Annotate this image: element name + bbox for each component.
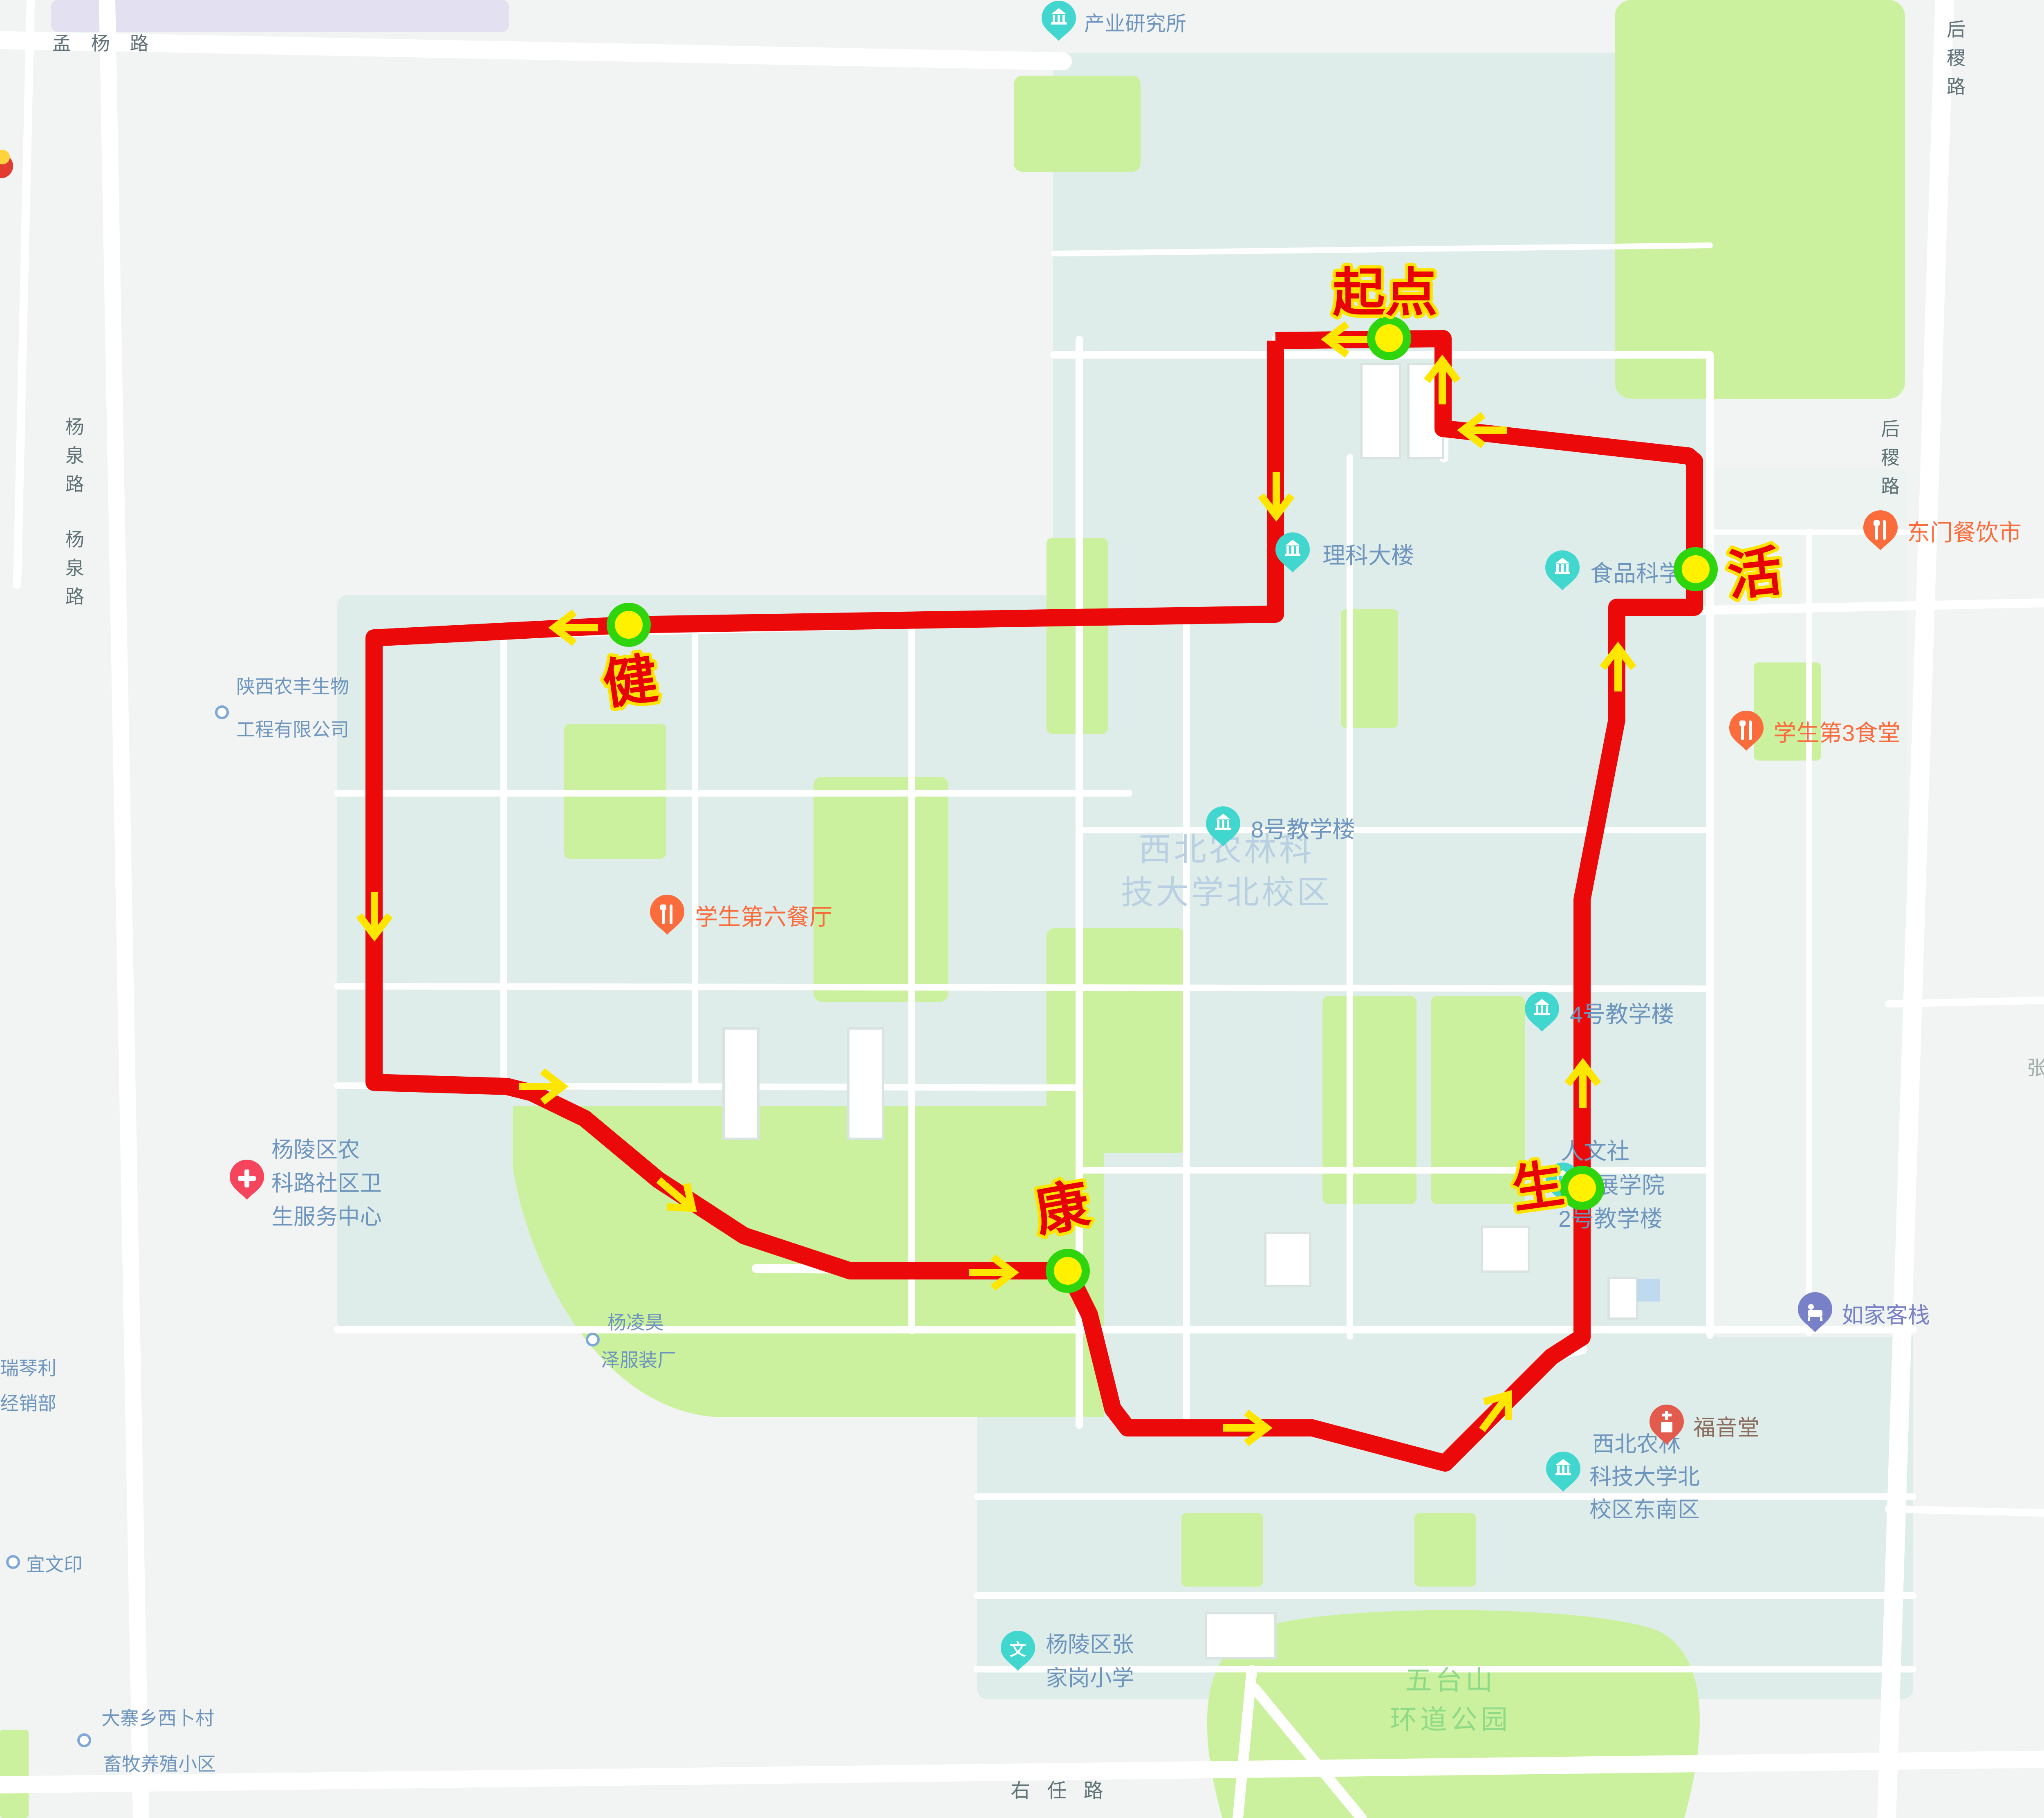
building-icon xyxy=(1053,15,1055,22)
poi-label: 校区东南区 xyxy=(1589,1497,1700,1522)
building-icon xyxy=(1058,15,1060,22)
school-icon: 文 xyxy=(1010,1641,1026,1659)
building-icon xyxy=(1567,1466,1569,1473)
label-houji-road-1: 稷 xyxy=(1947,47,1966,69)
poi-label: 福音堂 xyxy=(1693,1416,1759,1440)
waypoint-dot-icon xyxy=(615,611,643,639)
poi-label: 畜牧养殖小区 xyxy=(103,1753,216,1775)
i-h-2415 xyxy=(337,986,1710,989)
label-wutaishan-1: 五台山 xyxy=(1405,1665,1496,1695)
poi-label: 科技大学北 xyxy=(1589,1465,1700,1489)
poi-label: 东门餐饮市 xyxy=(1907,520,2022,545)
poi-label: 陕西农丰生物 xyxy=(236,676,349,697)
bldg-west-2 xyxy=(848,1028,883,1139)
building-icon xyxy=(1285,554,1300,556)
building-icon xyxy=(1555,1473,1571,1475)
poi-label: 学生第六餐厅 xyxy=(695,904,832,930)
label-wutaishan-2: 环道公园 xyxy=(1390,1704,1511,1735)
building-icon xyxy=(1566,564,1569,572)
bldg-school-side xyxy=(1206,1613,1275,1658)
green-west2 xyxy=(814,777,948,1002)
label-houji-road-1: 后 xyxy=(1947,19,1966,40)
label-yangquan-road-1: 泉 xyxy=(65,445,84,466)
restaurant-icon xyxy=(1749,720,1752,740)
label-yangquan-road-2: 泉 xyxy=(65,557,84,579)
building-icon xyxy=(1557,1466,1560,1473)
waypoint-dot-icon xyxy=(1054,1257,1082,1285)
hotel-icon xyxy=(1820,1317,1822,1321)
waypoint-dot-icon xyxy=(1682,555,1710,583)
building-icon xyxy=(1536,1006,1538,1013)
building-icon xyxy=(1291,546,1294,554)
bldg-hotel-side xyxy=(1609,1278,1637,1319)
label-yangquan-road-2: 路 xyxy=(65,586,84,607)
label-houji-road-2: 稷 xyxy=(1881,447,1900,468)
bldg-west-1 xyxy=(724,1028,758,1139)
hotel-icon xyxy=(1808,1317,1810,1321)
map-canvas[interactable]: 西北农林科技大学北校区五台山环道公园理科大楼食品科学8号教学楼4号教学楼人文社发… xyxy=(0,0,2044,1818)
poi-label: 杨凌昊 xyxy=(607,1312,664,1333)
poi-label: 杨陵区农 xyxy=(271,1138,360,1162)
building-icon xyxy=(1534,1013,1550,1015)
green-topcenter xyxy=(1014,76,1141,172)
building-icon xyxy=(1562,1466,1564,1473)
poi-label: 瑞琴利 xyxy=(0,1358,56,1379)
green-bottomleft xyxy=(0,1730,29,1818)
bldg-center-1 xyxy=(1265,1233,1310,1286)
poi-label: 产业研究所 xyxy=(1084,12,1186,35)
building-icon xyxy=(1546,1006,1548,1013)
label-houji-road-2: 后 xyxy=(1881,418,1900,440)
church-icon xyxy=(1661,1422,1672,1432)
waypoint-label: 活 xyxy=(1725,541,1785,606)
label-houji-road-2: 路 xyxy=(1881,476,1900,497)
poi-label: 食品科学 xyxy=(1590,561,1682,586)
building-icon xyxy=(1062,15,1065,22)
building-icon xyxy=(1561,564,1564,572)
building-icon xyxy=(1556,564,1559,572)
poi-dot-icon xyxy=(216,707,228,718)
restaurant-icon xyxy=(1739,720,1746,726)
waypoint-label: 康 xyxy=(1030,1174,1094,1243)
dorm-a xyxy=(1361,364,1400,458)
hotel-icon xyxy=(1808,1310,1822,1317)
poi-dot-icon xyxy=(7,1556,19,1568)
poi-zhangjiagang-village[interactable]: 张家岗村 xyxy=(2027,1057,2044,1079)
waypoint-dot-icon xyxy=(1375,324,1403,352)
poi-label: 科路社区卫 xyxy=(271,1171,382,1196)
poi-label: 理科大楼 xyxy=(1322,543,1414,568)
poi-label: 工程有限公司 xyxy=(236,719,349,740)
poi-label: 生服务中心 xyxy=(271,1205,382,1229)
poi-label: 家岗小学 xyxy=(1046,1666,1134,1690)
blue-building xyxy=(1637,1279,1660,1302)
bldg-center-2 xyxy=(1482,1227,1529,1272)
building-icon xyxy=(1296,546,1299,554)
poi-label: 2号教学楼 xyxy=(1558,1206,1663,1232)
label-youren-road: 右 任 路 xyxy=(1011,1780,1109,1802)
poi-label: 宜文印 xyxy=(26,1554,83,1575)
poi-label: 4号教学楼 xyxy=(1570,1001,1674,1027)
waypoint-label: 健 xyxy=(599,648,661,715)
label-mengyang-road: 孟 杨 路 xyxy=(52,33,156,54)
green-topright xyxy=(1615,0,1905,399)
building-icon xyxy=(1051,22,1067,25)
waypoint-label: 起点 xyxy=(1333,264,1437,322)
poi-label: 如家客栈 xyxy=(1842,1303,1930,1328)
restaurant-icon xyxy=(660,905,666,910)
label-houji-road-1: 路 xyxy=(1947,76,1966,97)
poi-dot-icon xyxy=(78,1735,90,1746)
poi-label: 8号教学楼 xyxy=(1251,817,1355,842)
building-icon xyxy=(1217,820,1219,828)
poi-dot-icon xyxy=(587,1334,598,1345)
restaurant-icon xyxy=(1874,520,1880,526)
building-icon xyxy=(1286,546,1289,554)
building-icon xyxy=(1555,572,1570,574)
label-yangquan-road-2: 杨 xyxy=(65,529,84,550)
lavender-block xyxy=(51,0,509,32)
hotel-icon xyxy=(1808,1304,1814,1310)
poi-label: 杨陵区张 xyxy=(1046,1632,1134,1657)
waypoint-label: 生 xyxy=(1508,1154,1567,1219)
hospital-icon xyxy=(238,1176,256,1181)
poi-label: 大寨乡西卜村 xyxy=(101,1708,214,1729)
green-bottom1 xyxy=(1181,1513,1263,1587)
restaurant-icon xyxy=(1883,520,1886,540)
poi-label: 张家岗村 xyxy=(2027,1057,2044,1079)
poi-label: 泽服装厂 xyxy=(601,1349,676,1371)
building-icon xyxy=(1222,820,1224,828)
label-yangquan-road-1: 路 xyxy=(65,474,84,495)
church-icon xyxy=(1662,1414,1672,1416)
poi-label: 人文社 xyxy=(1561,1138,1629,1164)
waypoint-dot-icon xyxy=(1568,1174,1596,1202)
poi-label: 经销部 xyxy=(0,1393,56,1414)
label-campus-watermark-2: 技大学北校区 xyxy=(1121,874,1332,911)
label-yangquan-road-1: 杨 xyxy=(65,416,84,438)
building-icon xyxy=(1215,828,1231,830)
green-bottom2 xyxy=(1414,1513,1476,1587)
building-icon xyxy=(1541,1006,1543,1013)
building-icon xyxy=(1227,820,1229,828)
restaurant-icon xyxy=(670,905,672,924)
poi-label: 学生第3食堂 xyxy=(1773,720,1901,746)
map-stage[interactable]: 西北农林科技大学北校区五台山环道公园理科大楼食品科学8号教学楼4号教学楼人文社发… xyxy=(0,0,2044,1818)
